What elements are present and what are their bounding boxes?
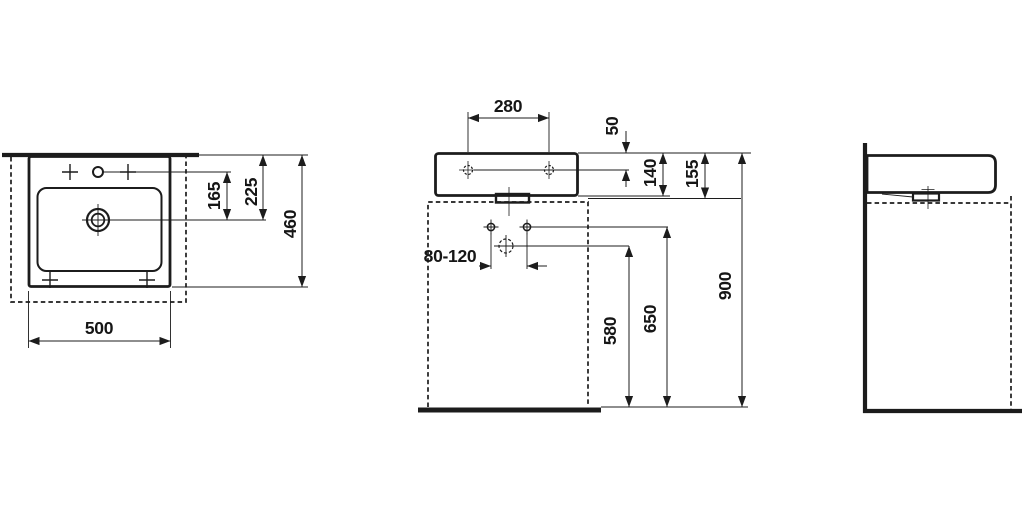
top-view: 165 225 460 500: [2, 155, 308, 348]
dim-900: 900: [715, 153, 742, 407]
drain-connection: [494, 235, 629, 257]
dim-label-500: 500: [85, 318, 114, 338]
side-view: [863, 143, 1022, 413]
pedestal-outline-dashed: [428, 202, 588, 407]
dim-500: 500: [29, 291, 171, 348]
front-view: 280 50 140 155: [418, 96, 751, 410]
dim-label-165: 165: [204, 181, 224, 210]
dim-140: 140: [640, 153, 663, 196]
dim-225: 225: [241, 155, 263, 220]
dim-label-225: 225: [241, 177, 261, 206]
dim-50: 50: [602, 116, 626, 187]
dim-80-120: 80-120: [424, 246, 547, 266]
dim-label-80-120: 80-120: [424, 246, 477, 266]
basin-front-outline: [436, 154, 578, 196]
dim-label-155: 155: [682, 159, 702, 188]
washbasin-drawing: 165 225 460 500: [0, 0, 1024, 512]
dim-label-280: 280: [494, 96, 523, 116]
bowl-outline: [38, 188, 162, 271]
dim-label-900: 900: [715, 271, 735, 300]
pedestal-outline-side-dashed: [867, 196, 1011, 409]
dim-label-140: 140: [640, 158, 660, 187]
drain-centerline-side: [922, 186, 935, 209]
dim-650: 650: [640, 227, 667, 407]
dim-label-650: 650: [640, 304, 660, 333]
fixing-hole-left: [459, 161, 477, 179]
dim-580: 580: [600, 246, 629, 407]
technical-drawing-canvas: 165 225 460 500: [0, 0, 1024, 512]
basin-side-outline: [867, 156, 996, 193]
dim-label-50: 50: [602, 116, 622, 135]
supply-hole-right: [520, 220, 535, 235]
dim-155: 155: [682, 153, 705, 199]
dim-460: 460: [172, 155, 308, 287]
supply-hole-left: [484, 220, 499, 235]
drain-lip-side: [913, 194, 939, 201]
dim-280: 280: [468, 96, 549, 152]
dim-label-460: 460: [280, 209, 300, 238]
tap-hole: [93, 167, 103, 177]
basin-bottom-slope: [882, 194, 913, 197]
dim-label-580: 580: [600, 316, 620, 345]
fixing-hole-right: [540, 161, 558, 179]
dim-165: 165: [204, 172, 227, 220]
